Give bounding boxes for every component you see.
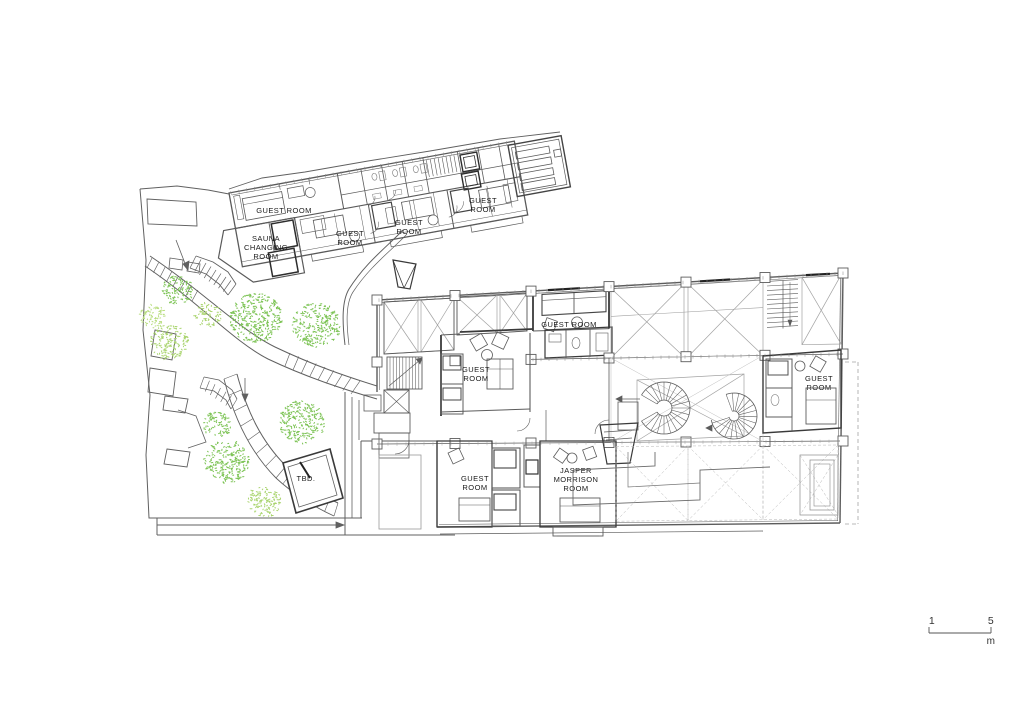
svg-text:SAUNA: SAUNA bbox=[252, 234, 280, 243]
svg-text:ROOM: ROOM bbox=[563, 484, 588, 493]
svg-text:JASPER: JASPER bbox=[560, 466, 592, 475]
svg-text:ROOM: ROOM bbox=[396, 227, 421, 236]
svg-text:TBD.: TBD. bbox=[297, 474, 316, 483]
svg-text:GUEST: GUEST bbox=[336, 229, 364, 238]
svg-text:GUEST: GUEST bbox=[461, 474, 489, 483]
svg-text:ROOM: ROOM bbox=[462, 483, 487, 492]
svg-text:ROOM: ROOM bbox=[470, 205, 495, 214]
svg-text:GUEST ROOM: GUEST ROOM bbox=[256, 206, 312, 215]
svg-text:ROOM: ROOM bbox=[337, 238, 362, 247]
svg-text:GUEST: GUEST bbox=[395, 218, 423, 227]
svg-text:1: 1 bbox=[929, 615, 935, 627]
svg-text:GUEST: GUEST bbox=[805, 374, 833, 383]
svg-text:GUEST: GUEST bbox=[462, 365, 490, 374]
svg-text:ROOM: ROOM bbox=[806, 383, 831, 392]
svg-text:5: 5 bbox=[988, 615, 994, 627]
svg-text:m: m bbox=[987, 636, 996, 647]
svg-text:MORRISON: MORRISON bbox=[554, 475, 599, 484]
svg-text:CHANGING: CHANGING bbox=[244, 243, 288, 252]
svg-text:ROOM: ROOM bbox=[253, 252, 278, 261]
svg-text:GUEST: GUEST bbox=[469, 196, 497, 205]
svg-text:ROOM: ROOM bbox=[463, 374, 488, 383]
